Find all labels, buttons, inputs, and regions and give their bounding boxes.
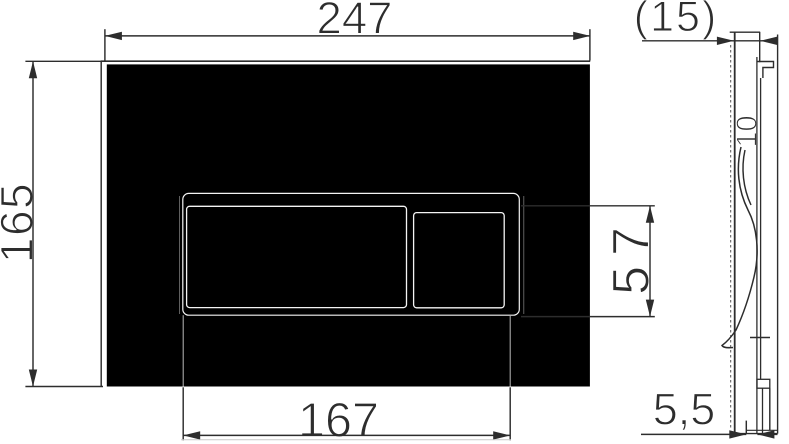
svg-text:247: 247: [317, 0, 393, 44]
svg-text:5,5: 5,5: [653, 384, 716, 435]
svg-text:10: 10: [732, 115, 764, 147]
svg-text:57: 57: [603, 217, 661, 295]
svg-text:165: 165: [0, 182, 42, 263]
svg-text:167: 167: [298, 394, 379, 444]
svg-text:(15): (15): [634, 0, 718, 41]
